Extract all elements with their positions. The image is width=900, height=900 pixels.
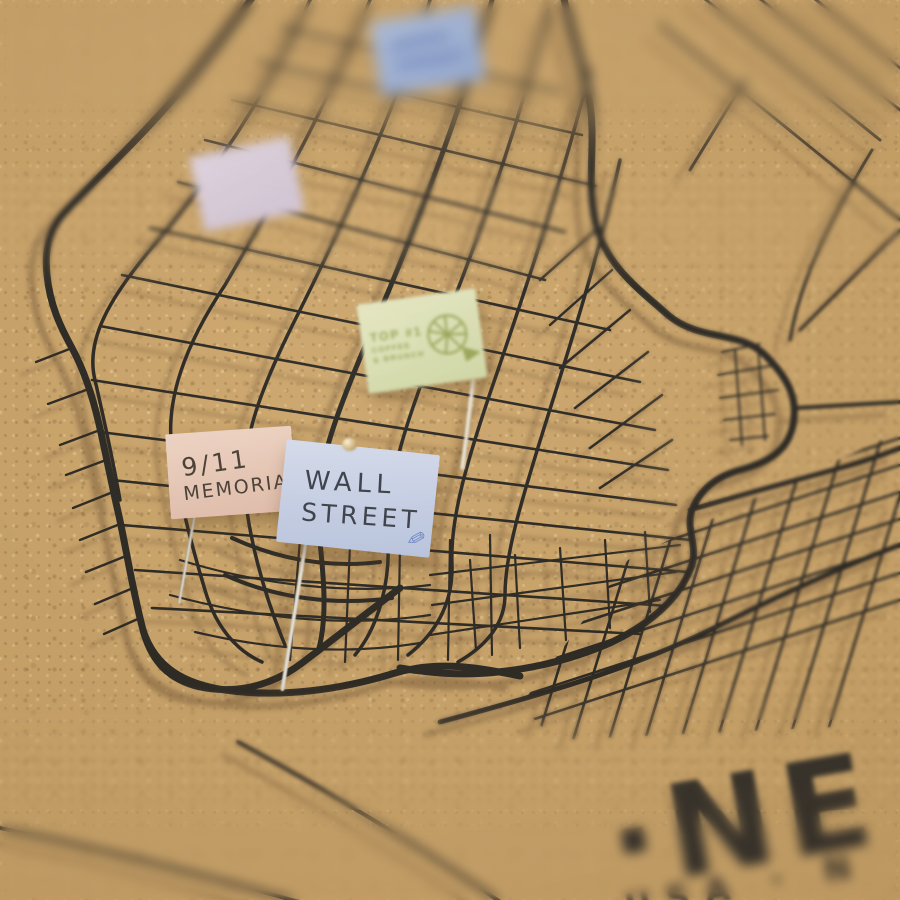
pie-logo-icon: [420, 304, 482, 369]
corkboard-photo: ·NE USA · N TOP #1 COFFEE & BRUNCH 9/11 …: [0, 0, 900, 900]
wall-street-flag: WALL STREET ✎: [276, 439, 440, 558]
top1-flag: TOP #1 COFFEE & BRUNCH: [356, 288, 487, 394]
pin-head: [342, 438, 357, 451]
memorial-flag: 9/11 MEMORIAL: [165, 426, 297, 520]
flag-label: TOP #1 COFFEE & BRUNCH: [369, 323, 426, 365]
